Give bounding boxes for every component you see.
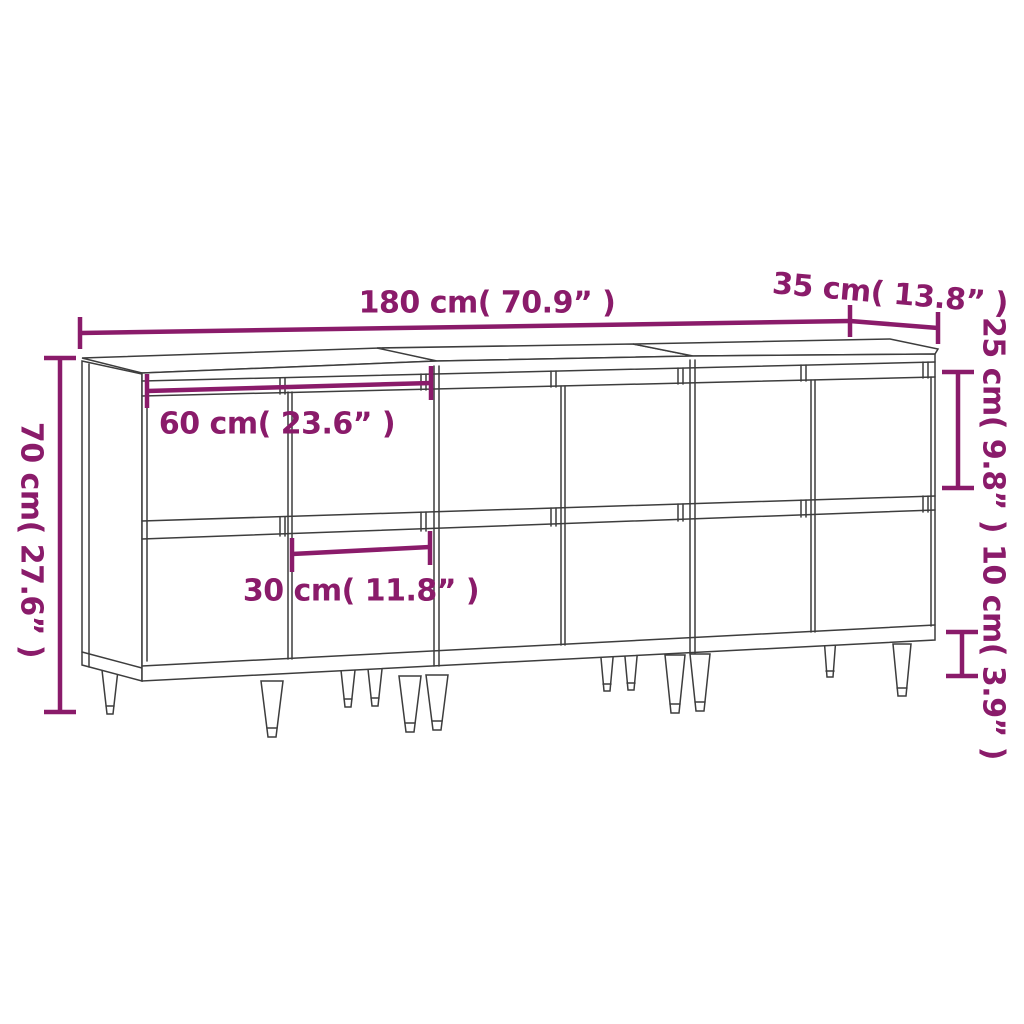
furniture-line-drawing: [0, 0, 1024, 1024]
sideboard-front-face: [142, 354, 935, 681]
dimension-diagram: 180 cm( 70.9” ) 35 cm( 13.8” ) 70 cm( 27…: [0, 0, 1024, 1024]
dimension-line-leg-height: [946, 632, 978, 676]
sideboard-drawing: [82, 339, 938, 737]
dimension-label-upper-door-height: 25 cm( 9.8” ): [976, 317, 1011, 533]
dimension-line-upper-door-height: [942, 372, 974, 488]
sideboard-side-panel: [82, 361, 142, 681]
dimension-label-leg-height: 10 cm( 3.9” ): [976, 544, 1011, 760]
dimension-label-height: 70 cm( 27.6” ): [14, 422, 49, 658]
dimension-label-total-width: 180 cm( 70.9” ): [359, 286, 616, 321]
dimension-label-unit-width: 60 cm( 23.6” ): [159, 407, 395, 442]
dimension-line-height: [44, 358, 76, 712]
dimension-label-door-width: 30 cm( 11.8” ): [243, 574, 479, 609]
